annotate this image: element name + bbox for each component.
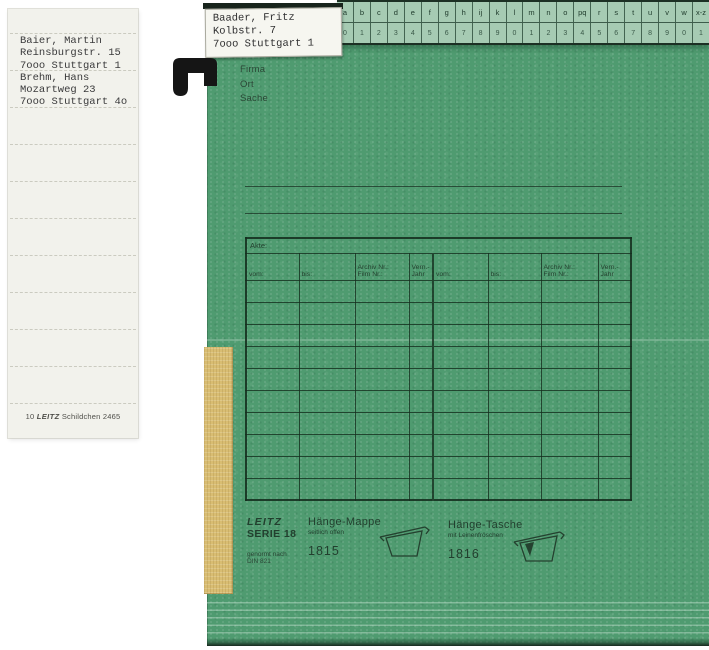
folder-bottom-edge: [207, 638, 709, 646]
hook-icon: [172, 56, 220, 98]
haenge-tasche-icon: [511, 527, 567, 570]
table-row: [246, 324, 631, 346]
din-note: genormt nach DIN 821: [247, 551, 287, 565]
folder-tab-label: Baader, Fritz Kolbstr. 7 7ooo Stuttgart …: [205, 7, 343, 58]
table-cell: [598, 412, 631, 434]
din-note-line2: DIN 821: [247, 558, 287, 565]
index-letter-cell: w: [676, 2, 693, 22]
sheet-caption: 10 LEITZ Schildchen 2465: [8, 412, 138, 421]
table-cell: [299, 324, 355, 346]
table-row: [246, 390, 631, 412]
table-cell: [488, 346, 541, 368]
akte-label: Akte:: [246, 238, 631, 253]
table-cell: [433, 368, 488, 390]
table-cell: [299, 280, 355, 302]
index-letter-cell: pq: [574, 2, 591, 22]
index-number-cell: 9: [659, 23, 676, 43]
label-sheet: Baier, Martin Reinsburgstr. 15 7ooo Stut…: [8, 9, 138, 438]
table-row: [246, 478, 631, 500]
table-row: [246, 434, 631, 456]
table-cell: [409, 390, 433, 412]
table-cell: [246, 390, 299, 412]
index-number-cell: 1: [693, 23, 709, 43]
table-cell: [488, 324, 541, 346]
leitz-logo-text: LEITZ: [37, 412, 60, 421]
index-letter-cell: c: [371, 2, 388, 22]
table-cell: [541, 368, 598, 390]
product-subtitle: seitlich offen: [308, 529, 381, 536]
table-row: [246, 346, 631, 368]
table-cell: [246, 456, 299, 478]
table-cell: [409, 478, 433, 500]
table-cell: [433, 390, 488, 412]
table-cell: [541, 302, 598, 324]
series-label: SERIE 18: [247, 528, 296, 540]
index-letter-cell: b: [354, 2, 371, 22]
writing-rule-1: [245, 186, 622, 187]
index-letter-cell: ij: [473, 2, 490, 22]
index-letter-cell: x-z: [693, 2, 709, 22]
index-number-cell: 1: [523, 23, 540, 43]
table-col-header: bis:: [299, 253, 355, 280]
table-cell: [299, 368, 355, 390]
table-cell: [433, 280, 488, 302]
table-cell: [246, 302, 299, 324]
index-letter-cell: d: [388, 2, 405, 22]
table-cell: [355, 346, 409, 368]
table-cell: [299, 346, 355, 368]
index-letter-cell: u: [642, 2, 659, 22]
table-cell: [299, 434, 355, 456]
index-number-cell: 2: [540, 23, 557, 43]
perforation-line: [10, 144, 136, 145]
akte-header-row: Akte:: [246, 238, 631, 253]
index-letters-row: abcdefghijklmnopqrstuvwx-z: [337, 2, 709, 23]
index-letter-cell: k: [490, 2, 507, 22]
sheet-caption-count: 10: [26, 412, 35, 421]
table-cell: [246, 434, 299, 456]
perforation-line: [10, 366, 136, 367]
table-cell: [598, 478, 631, 500]
table-cell: [433, 302, 488, 324]
perforation-line: [10, 218, 136, 219]
table-row: [246, 412, 631, 434]
index-letter-cell: t: [625, 2, 642, 22]
perforation-line: [10, 403, 136, 404]
table-cell: [598, 324, 631, 346]
table-cell: [246, 346, 299, 368]
index-letter-cell: m: [523, 2, 540, 22]
table-cell: [433, 412, 488, 434]
perforation-line: [10, 181, 136, 182]
bottom-fold-lines: [207, 596, 709, 634]
table-cell: [409, 324, 433, 346]
table-cell: [299, 302, 355, 324]
table-row: [246, 456, 631, 478]
index-number-cell: 5: [422, 23, 439, 43]
table-cell: [541, 346, 598, 368]
table-row: [246, 368, 631, 390]
index-letter-cell: h: [456, 2, 473, 22]
table-cell: [541, 456, 598, 478]
index-numbers-row: 0123456789012345678901: [337, 23, 709, 43]
table-cell: [541, 324, 598, 346]
index-letter-cell: g: [439, 2, 456, 22]
table-cell: [355, 280, 409, 302]
table-cell: [598, 280, 631, 302]
index-letter-cell: n: [540, 2, 557, 22]
index-letter-cell: l: [507, 2, 524, 22]
typed-address-block: Baier, Martin Reinsburgstr. 15 7ooo Stut…: [20, 35, 127, 109]
index-number-cell: 9: [490, 23, 507, 43]
table-cell: [598, 390, 631, 412]
table-cell: [488, 302, 541, 324]
table-cell: [409, 412, 433, 434]
table-cell: [246, 368, 299, 390]
table-cell: [433, 434, 488, 456]
table-col-header: Vern.-Jahr: [409, 253, 433, 280]
table-cell: [409, 368, 433, 390]
table-cell: [541, 280, 598, 302]
index-number-cell: 8: [642, 23, 659, 43]
index-number-cell: 3: [388, 23, 405, 43]
index-number-cell: 6: [439, 23, 456, 43]
table-cell: [409, 280, 433, 302]
table-cell: [355, 478, 409, 500]
index-number-cell: 4: [574, 23, 591, 43]
hanging-hook: [172, 56, 220, 103]
perforation-line: [10, 255, 136, 256]
table-cell: [598, 346, 631, 368]
table-col-header: Vern.-Jahr: [598, 253, 631, 280]
table-row: [246, 302, 631, 324]
table-cell: [409, 302, 433, 324]
table-cell: [433, 456, 488, 478]
haenge-mappe-icon: [378, 523, 430, 564]
table-col-header: Archiv Nr.:Film Nr.:: [541, 253, 598, 280]
table-cell: [433, 346, 488, 368]
table-cell: [355, 324, 409, 346]
table-col-header: bis:: [488, 253, 541, 280]
index-number-cell: 8: [473, 23, 490, 43]
index-number-cell: 2: [371, 23, 388, 43]
product-haenge-mappe: Hänge-Mappe seitlich offen 1815: [308, 516, 381, 558]
table-cell: [598, 434, 631, 456]
akte-table: Akte: vom:bis:Archiv Nr.:Film Nr.:Vern.-…: [245, 237, 632, 501]
table-cell: [433, 478, 488, 500]
table-cell: [488, 368, 541, 390]
table-cell: [409, 346, 433, 368]
table-cell: [433, 324, 488, 346]
sheet-caption-text: Schildchen 2465: [62, 412, 120, 421]
writing-rule-2: [245, 213, 622, 214]
din-note-line1: genormt nach: [247, 551, 287, 558]
table-cell: [488, 412, 541, 434]
index-number-cell: 1: [354, 23, 371, 43]
table-cell: [488, 390, 541, 412]
table-cell: [598, 456, 631, 478]
field-label: Sache: [240, 92, 268, 107]
product-name: Hänge-Mappe: [308, 516, 381, 528]
table-cell: [355, 456, 409, 478]
table-cell: [355, 412, 409, 434]
index-number-cell: 3: [557, 23, 574, 43]
table-col-header: vom:: [433, 253, 488, 280]
table-cell: [409, 456, 433, 478]
table-cell: [541, 478, 598, 500]
table-cell: [355, 368, 409, 390]
index-number-cell: 4: [405, 23, 422, 43]
linen-tape-strip: [204, 347, 233, 594]
alphabet-index-strip: abcdefghijklmnopqrstuvwx-z 0123456789012…: [337, 0, 709, 45]
perforation-line: [10, 33, 136, 34]
index-letter-cell: f: [422, 2, 439, 22]
table-cell: [409, 434, 433, 456]
brand-block: LEITZ SERIE 18: [247, 516, 296, 540]
index-number-cell: 0: [507, 23, 524, 43]
table-cell: [299, 456, 355, 478]
table-cell: [246, 324, 299, 346]
perforation-line: [10, 329, 136, 330]
table-cell: [299, 390, 355, 412]
table-cell: [299, 478, 355, 500]
index-number-cell: 7: [625, 23, 642, 43]
index-number-cell: 5: [591, 23, 608, 43]
table-cell: [246, 280, 299, 302]
table-cell: [541, 412, 598, 434]
leitz-logo-text: LEITZ: [247, 516, 296, 528]
index-number-cell: 7: [456, 23, 473, 43]
index-letter-cell: e: [405, 2, 422, 22]
table-cell: [246, 412, 299, 434]
table-cell: [541, 390, 598, 412]
index-number-cell: 0: [676, 23, 693, 43]
product-number: 1815: [308, 544, 381, 558]
index-letter-cell: r: [591, 2, 608, 22]
table-cell: [541, 434, 598, 456]
table-row: [246, 280, 631, 302]
table-cell: [598, 302, 631, 324]
perforation-line: [10, 292, 136, 293]
table-col-header: vom:: [246, 253, 299, 280]
table-column-headers: vom:bis:Archiv Nr.:Film Nr.:Vern.-Jahrvo…: [246, 253, 631, 280]
index-number-cell: 6: [608, 23, 625, 43]
table-cell: [299, 412, 355, 434]
table-cell: [355, 390, 409, 412]
table-cell: [246, 478, 299, 500]
product-photo-stage: Baier, Martin Reinsburgstr. 15 7ooo Stut…: [0, 0, 709, 650]
index-letter-cell: o: [557, 2, 574, 22]
address-field-labels: FirmaOrtSache: [240, 63, 268, 107]
table-cell: [355, 434, 409, 456]
field-label: Firma: [240, 63, 268, 78]
field-label: Ort: [240, 78, 268, 93]
index-letter-cell: v: [659, 2, 676, 22]
table-cell: [488, 478, 541, 500]
table-cell: [598, 368, 631, 390]
table-col-header: Archiv Nr.:Film Nr.:: [355, 253, 409, 280]
index-letter-cell: s: [608, 2, 625, 22]
table-cell: [488, 434, 541, 456]
table-cell: [488, 280, 541, 302]
table-cell: [488, 456, 541, 478]
table-cell: [355, 302, 409, 324]
